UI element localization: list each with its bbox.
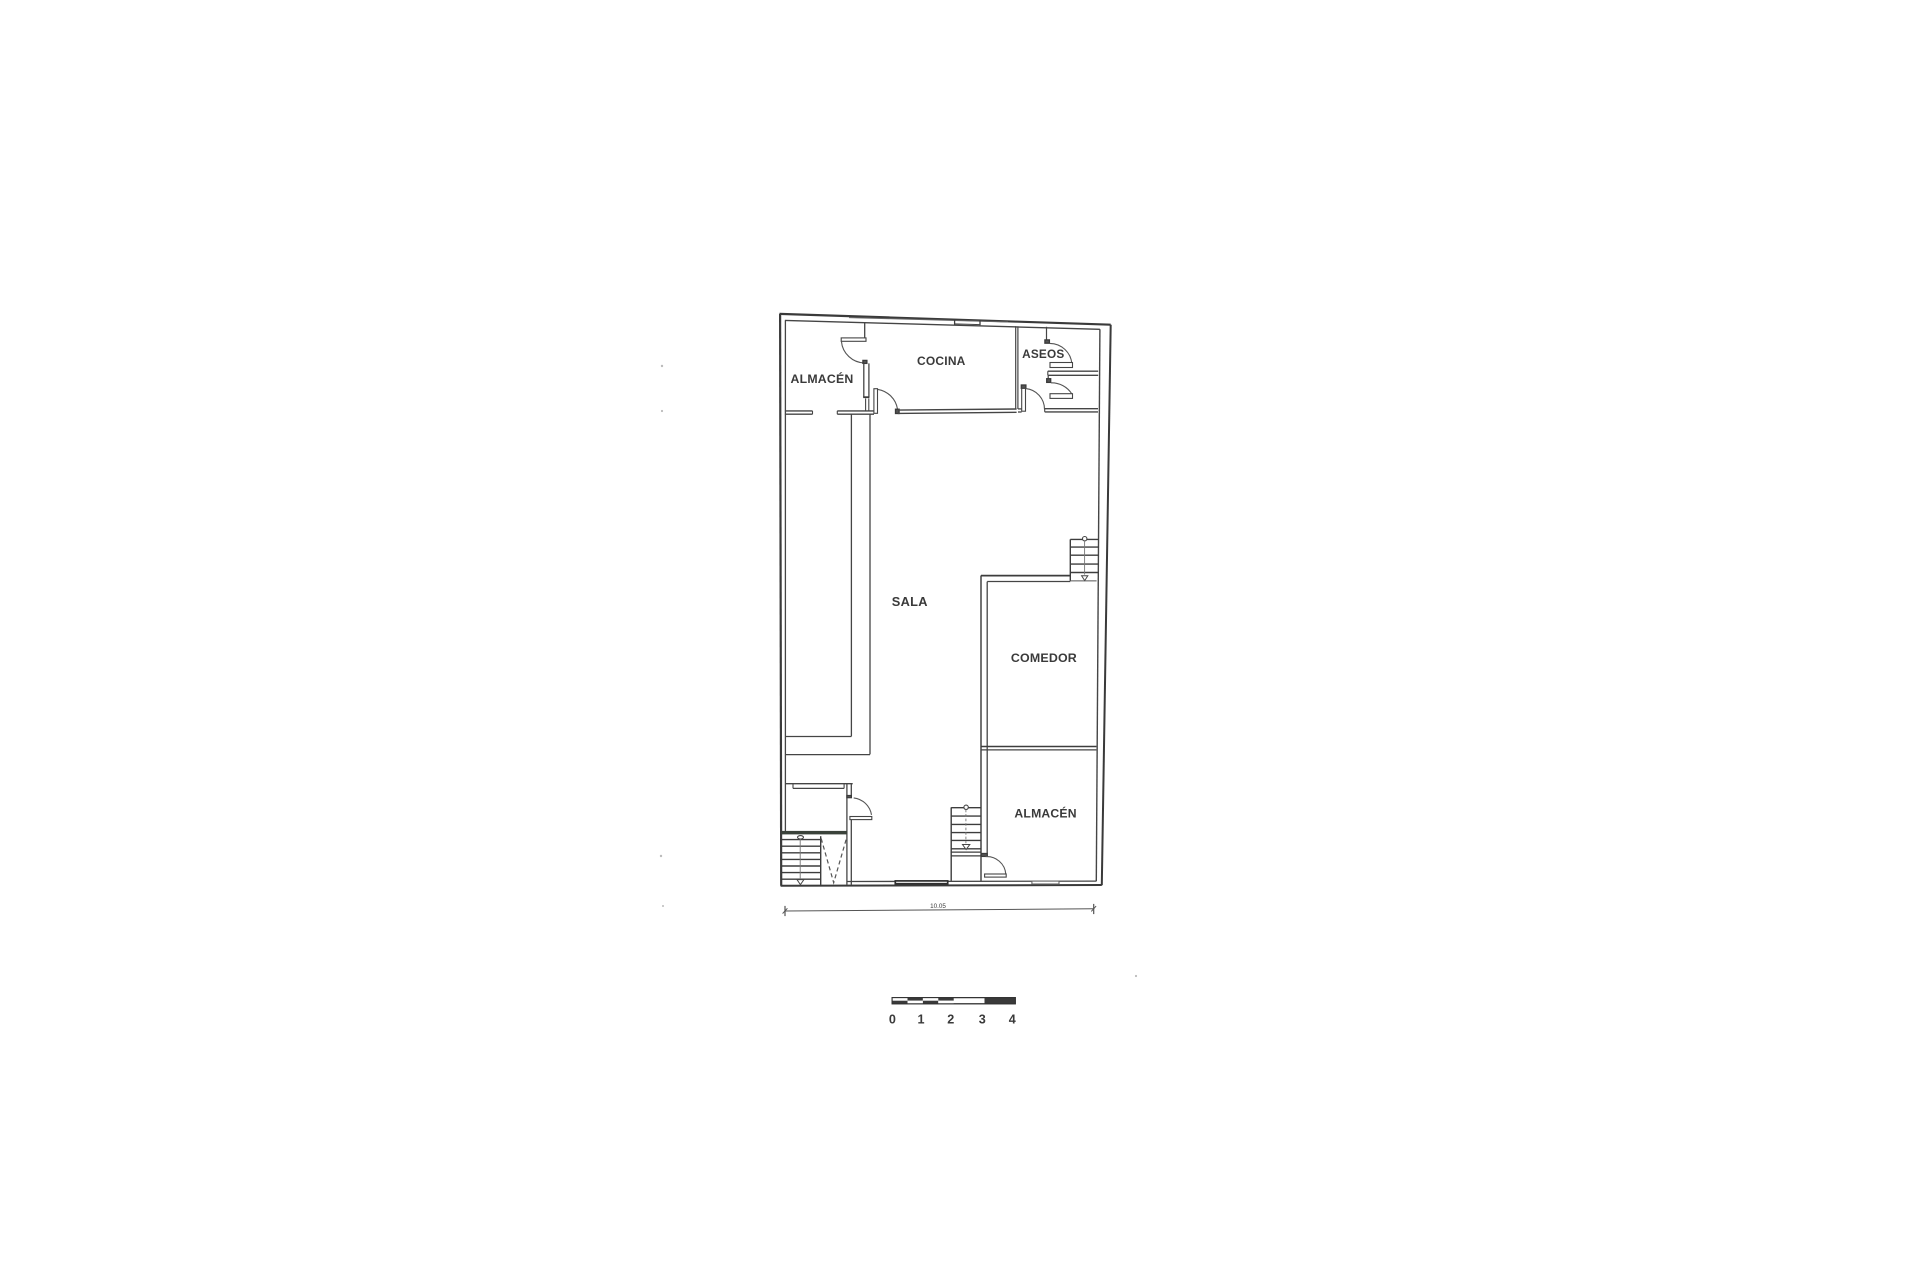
svg-text:COMEDOR: COMEDOR xyxy=(1011,651,1077,665)
svg-text:COCINA: COCINA xyxy=(917,354,966,368)
svg-text:ALMACÉN: ALMACÉN xyxy=(791,371,854,386)
svg-text:ASEOS: ASEOS xyxy=(1022,347,1064,361)
svg-text:2: 2 xyxy=(947,1013,954,1027)
svg-text:SALA: SALA xyxy=(892,594,928,609)
svg-text:4: 4 xyxy=(1009,1013,1016,1027)
svg-text:1: 1 xyxy=(917,1013,924,1027)
svg-text:ALMACÉN: ALMACÉN xyxy=(1014,805,1076,820)
svg-text:3: 3 xyxy=(979,1013,986,1027)
svg-text:10.05: 10.05 xyxy=(930,903,946,910)
svg-text:0: 0 xyxy=(889,1013,896,1027)
